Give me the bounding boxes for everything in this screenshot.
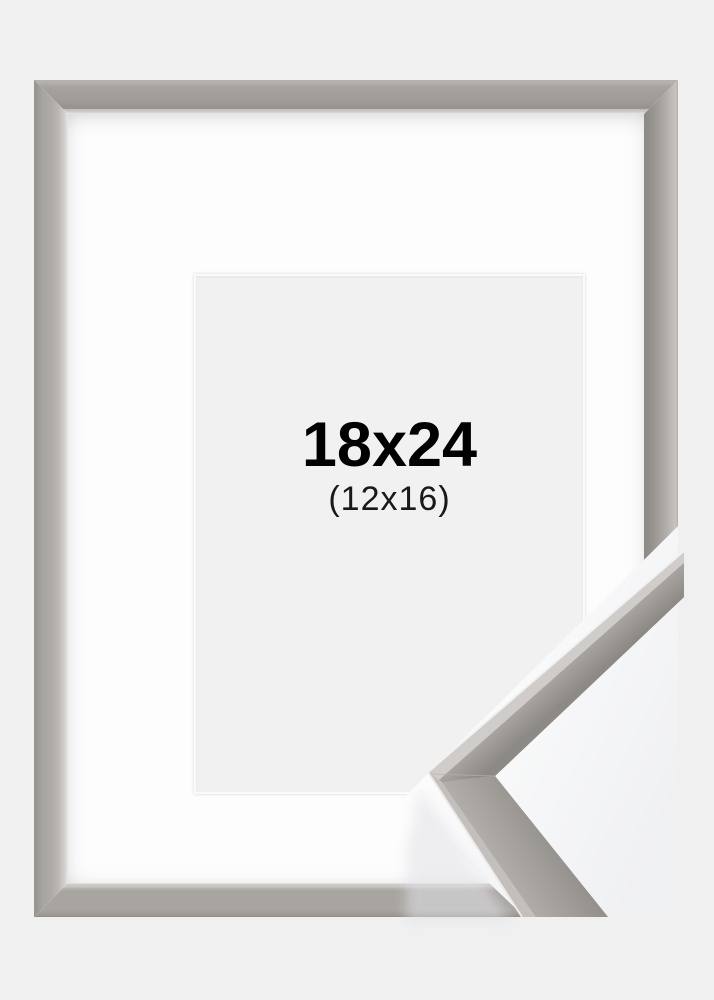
outer-size-label: 18x24: [196, 414, 583, 477]
product-photo: 18x24 (12x16): [0, 0, 714, 1000]
corner-detail-sample: [390, 520, 714, 930]
corner-sample-upper-highlight: [428, 551, 684, 772]
frame-rail-top: [34, 80, 678, 114]
frame-rail-left: [34, 80, 68, 917]
inner-size-label: (12x16): [196, 482, 583, 516]
corner-sample-upper-arm-top-edge: [428, 551, 684, 781]
